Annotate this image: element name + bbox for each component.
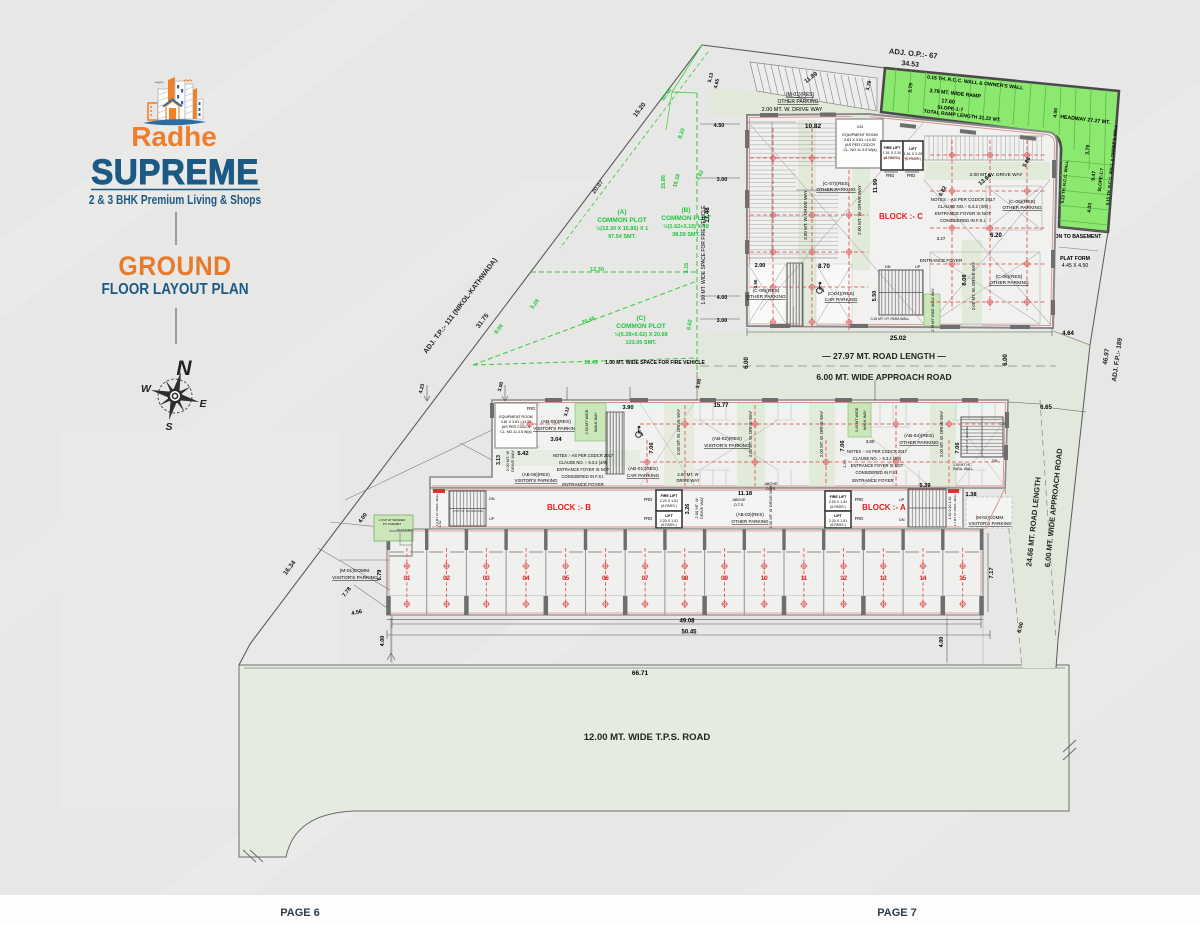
svg-text:(AS PER CGDCR: (AS PER CGDCR bbox=[502, 425, 531, 429]
svg-text:VISITOR'S PARKING: VISITOR'S PARKING bbox=[332, 575, 378, 581]
svg-text:1.52 0.10 1.52: 1.52 0.10 1.52 bbox=[948, 497, 952, 520]
svg-text:2.00 MT. W. DRIVE WAY: 2.00 MT. W. DRIVE WAY bbox=[939, 411, 944, 458]
svg-text:PAGE 7: PAGE 7 bbox=[877, 907, 917, 919]
svg-text:7.06: 7.06 bbox=[955, 442, 961, 454]
svg-text:OTHER PARKING: OTHER PARKING bbox=[732, 519, 769, 524]
svg-text:8.70: 8.70 bbox=[818, 264, 830, 270]
svg-text:(A): (A) bbox=[617, 209, 626, 216]
svg-text:1.51 X 2.20: 1.51 X 2.20 bbox=[883, 151, 901, 155]
svg-text:15.86: 15.86 bbox=[661, 175, 667, 189]
svg-text:LIFT: LIFT bbox=[909, 147, 917, 151]
svg-text:6.65: 6.65 bbox=[1040, 405, 1052, 411]
svg-text:2 & 3 BHK Premium Living & Sho: 2 & 3 BHK Premium Living & Shops bbox=[89, 193, 261, 207]
svg-text:10.82: 10.82 bbox=[805, 123, 822, 130]
svg-text:COMMON PLOT: COMMON PLOT bbox=[597, 217, 646, 224]
svg-text:UP: UP bbox=[915, 265, 921, 269]
svg-text:½(12.30 X 15.86) X 1: ½(12.30 X 15.86) X 1 bbox=[596, 225, 648, 232]
svg-text:WALK WAY: WALK WAY bbox=[594, 412, 598, 432]
svg-text:Radhe: Radhe bbox=[131, 121, 217, 152]
svg-text:(M-01)COMM.: (M-01)COMM. bbox=[340, 568, 371, 574]
svg-text:2.79 MT WIDE WALK WAY: 2.79 MT WIDE WALK WAY bbox=[931, 288, 935, 332]
svg-text:25.02: 25.02 bbox=[890, 335, 907, 342]
svg-text:N: N bbox=[176, 357, 192, 380]
svg-text:BLOCK :- B: BLOCK :- B bbox=[547, 503, 591, 512]
svg-text:SUPREME: SUPREME bbox=[91, 153, 259, 192]
svg-text:2.00 MT. W. DRIVE WAY: 2.00 MT. W. DRIVE WAY bbox=[857, 185, 862, 235]
svg-text:(B): (B) bbox=[681, 207, 690, 214]
svg-text:UP: UP bbox=[899, 498, 905, 502]
svg-text:(C-06)(RES): (C-06)(RES) bbox=[1009, 199, 1036, 205]
svg-text:4.00: 4.00 bbox=[1052, 107, 1059, 118]
svg-text:12.00 MT. WIDE T.P.S. ROAD: 12.00 MT. WIDE T.P.S. ROAD bbox=[584, 732, 711, 743]
svg-text:3.15: 3.15 bbox=[684, 263, 690, 274]
svg-text:OTHER PARKING: OTHER PARKING bbox=[899, 440, 939, 446]
svg-text:38.59 SMT.: 38.59 SMT. bbox=[672, 232, 700, 238]
svg-text:2.00 MT. W: 2.00 MT. W bbox=[677, 472, 698, 477]
svg-text:ABOVE: ABOVE bbox=[732, 498, 746, 502]
svg-text:ENTRANCE FOYER IS NOT: ENTRANCE FOYER IS NOT bbox=[557, 467, 610, 472]
svg-text:(6 PASS.): (6 PASS.) bbox=[830, 523, 846, 527]
svg-text:2.00 MT. W. DRIVE WAY: 2.00 MT. W. DRIVE WAY bbox=[762, 107, 823, 113]
svg-text:10: 10 bbox=[761, 575, 768, 582]
svg-text:17.48: 17.48 bbox=[704, 207, 711, 223]
svg-text:3.49 MT WIDE: 3.49 MT WIDE bbox=[855, 407, 859, 432]
svg-text:DN TO BASEMENT: DN TO BASEMENT bbox=[1055, 234, 1102, 240]
svg-text:09: 09 bbox=[721, 575, 728, 582]
svg-text:15.77: 15.77 bbox=[713, 403, 729, 409]
svg-text:0.15 MT. HT. PARA WALL: 0.15 MT. HT. PARA WALL bbox=[871, 317, 910, 321]
svg-text:(AB-02)(RES): (AB-02)(RES) bbox=[712, 436, 742, 442]
svg-text:4.03: 4.03 bbox=[1087, 203, 1094, 214]
svg-text:DRIVE WAY: DRIVE WAY bbox=[676, 478, 699, 483]
svg-text:— 27.97 MT. ROAD LENGTH —: — 27.97 MT. ROAD LENGTH — bbox=[822, 351, 946, 361]
svg-text:(C-04)(RES): (C-04)(RES) bbox=[828, 291, 855, 297]
svg-text:VISITOR'S PARKING: VISITOR'S PARKING bbox=[515, 478, 558, 483]
svg-text:CL. NO.11.3.5 W(a): CL. NO.11.3.5 W(a) bbox=[843, 148, 877, 152]
svg-text:VISITOR'S PARKING: VISITOR'S PARKING bbox=[704, 443, 750, 449]
svg-text:123.05 SMT.: 123.05 SMT. bbox=[626, 340, 657, 346]
svg-text:½(5.28+6.62) X 20.68: ½(5.28+6.62) X 20.68 bbox=[614, 331, 667, 338]
svg-text:PAGE 6: PAGE 6 bbox=[280, 907, 320, 919]
svg-text:O.T.S.: O.T.S. bbox=[734, 503, 745, 507]
svg-text:7.06: 7.06 bbox=[840, 440, 846, 452]
svg-text:5.42: 5.42 bbox=[517, 451, 528, 457]
svg-text:OTHER PARKING: OTHER PARKING bbox=[746, 294, 786, 300]
svg-text:WALK WAY: WALK WAY bbox=[863, 410, 867, 430]
svg-text:04: 04 bbox=[523, 575, 530, 582]
svg-text:VISITOR'S PARKING: VISITOR'S PARKING bbox=[533, 426, 579, 432]
svg-text:12: 12 bbox=[840, 575, 847, 582]
svg-text:S: S bbox=[165, 421, 172, 433]
svg-text:19.45: 19.45 bbox=[584, 360, 598, 366]
svg-text:1.1 MT HT PARA. WALL: 1.1 MT HT PARA. WALL bbox=[953, 493, 957, 526]
svg-text:ENTRANCE FOYER: ENTRANCE FOYER bbox=[920, 258, 963, 263]
svg-text:9.47: 9.47 bbox=[1091, 171, 1098, 182]
svg-text:2.00 MT. W. DRIVE WAY: 2.00 MT. W. DRIVE WAY bbox=[748, 411, 753, 458]
svg-text:3.81 X 3.81 =14.52: 3.81 X 3.81 =14.52 bbox=[844, 138, 876, 142]
svg-text:GROUND: GROUND bbox=[118, 252, 231, 281]
svg-text:DN: DN bbox=[489, 497, 495, 501]
svg-text:2.53 MT WIDE: 2.53 MT WIDE bbox=[585, 409, 589, 434]
svg-text:E: E bbox=[199, 398, 207, 410]
svg-text:DRIVE WAY: DRIVE WAY bbox=[699, 497, 704, 519]
svg-text:14: 14 bbox=[920, 575, 927, 582]
svg-text:FIRE LIFT: FIRE LIFT bbox=[884, 146, 902, 150]
svg-text:FIRE LIFT: FIRE LIFT bbox=[661, 494, 679, 498]
svg-text:(AB-01)(RES): (AB-01)(RES) bbox=[628, 466, 658, 472]
svg-text:2.20 X 1.51: 2.20 X 1.51 bbox=[660, 499, 678, 503]
svg-text:3.26: 3.26 bbox=[685, 504, 691, 515]
svg-text:ENTRANCE FOYER: ENTRANCE FOYER bbox=[562, 482, 604, 487]
svg-text:1.51 X 2.20: 1.51 X 2.20 bbox=[904, 152, 922, 156]
svg-text:7.06: 7.06 bbox=[649, 442, 655, 454]
svg-text:FRD: FRD bbox=[527, 406, 536, 411]
svg-text:DRIVE WAY: DRIVE WAY bbox=[510, 450, 515, 472]
svg-text:3.27: 3.27 bbox=[937, 236, 946, 241]
svg-text:DN: DN bbox=[899, 518, 905, 522]
svg-text:COMMON PLOT: COMMON PLOT bbox=[616, 323, 665, 330]
svg-text:02: 02 bbox=[443, 575, 450, 582]
svg-text:BLOCK :- A: BLOCK :- A bbox=[862, 503, 906, 512]
svg-text:W: W bbox=[141, 383, 152, 395]
svg-text:07: 07 bbox=[642, 575, 649, 582]
svg-text:(AB-06)(RES): (AB-06)(RES) bbox=[522, 472, 550, 477]
svg-text:CL. NO.11.3.5 W(a): CL. NO.11.3.5 W(a) bbox=[500, 430, 532, 434]
svg-text:DN: DN bbox=[885, 265, 891, 269]
svg-text:1.30: 1.30 bbox=[842, 459, 847, 468]
svg-text:(C-07)(RES): (C-07)(RES) bbox=[823, 181, 850, 187]
svg-text:2.00 MT. W. DRIVE WAY: 2.00 MT. W. DRIVE WAY bbox=[969, 172, 1023, 178]
svg-text:13: 13 bbox=[880, 575, 887, 582]
svg-text:05: 05 bbox=[562, 575, 569, 582]
svg-text:8.08: 8.08 bbox=[962, 274, 968, 286]
svg-text:6.00 MT. WIDE APPROACH ROAD: 6.00 MT. WIDE APPROACH ROAD bbox=[816, 372, 951, 382]
svg-text:6.20: 6.20 bbox=[990, 233, 1002, 239]
svg-text:NOTES :- AS PER CGDCR 2017: NOTES :- AS PER CGDCR 2017 bbox=[931, 197, 996, 202]
svg-text:ENTRANCE FOYER IS NOT: ENTRANCE FOYER IS NOT bbox=[935, 211, 992, 216]
svg-text:(6 PASS.): (6 PASS.) bbox=[830, 505, 846, 509]
svg-text:EQUIPMENT ROOM: EQUIPMENT ROOM bbox=[499, 415, 532, 419]
svg-text:FRD: FRD bbox=[855, 516, 864, 521]
svg-text:15: 15 bbox=[959, 575, 966, 582]
svg-text:BLOCK :- C: BLOCK :- C bbox=[879, 212, 923, 221]
svg-text:3.81: 3.81 bbox=[857, 125, 864, 129]
svg-text:NOTES :- AS PER CGDCR 2017: NOTES :- AS PER CGDCR 2017 bbox=[847, 449, 908, 454]
svg-text:UP: UP bbox=[489, 517, 495, 521]
svg-text:CAR PARKING: CAR PARKING bbox=[825, 297, 858, 303]
svg-text:ENTRANCE FOYER: ENTRANCE FOYER bbox=[852, 478, 894, 483]
svg-text:FRD: FRD bbox=[855, 497, 864, 502]
svg-text:2.00 MT. W. DRIVE WAY: 2.00 MT. W. DRIVE WAY bbox=[676, 409, 681, 456]
svg-text:01: 01 bbox=[403, 575, 410, 582]
svg-text:2.00 MT. W. DRIVE WAY: 2.00 MT. W. DRIVE WAY bbox=[819, 411, 824, 458]
svg-text:(6 PASS.): (6 PASS.) bbox=[661, 504, 677, 508]
svg-text:1.52: 1.52 bbox=[438, 521, 442, 528]
svg-text:11.99: 11.99 bbox=[873, 178, 879, 193]
svg-text:3.79: 3.79 bbox=[907, 82, 914, 93]
svg-text:7.17: 7.17 bbox=[989, 567, 995, 578]
svg-text:03: 03 bbox=[483, 575, 490, 582]
svg-text:6.79: 6.79 bbox=[377, 570, 383, 581]
svg-text:12.30: 12.30 bbox=[590, 267, 604, 273]
svg-text:3.80: 3.80 bbox=[866, 439, 875, 444]
svg-text:FRD: FRD bbox=[907, 173, 916, 178]
svg-text:0.50: 0.50 bbox=[753, 279, 758, 288]
svg-text:5.50: 5.50 bbox=[872, 291, 878, 302]
svg-text:2.00: 2.00 bbox=[755, 263, 766, 269]
svg-text:CONSIDERED IN F.S.I.: CONSIDERED IN F.S.I. bbox=[856, 470, 899, 475]
svg-text:FRD: FRD bbox=[644, 516, 653, 521]
svg-text:66.71: 66.71 bbox=[632, 670, 649, 677]
svg-text:97.54 SMT.: 97.54 SMT. bbox=[608, 234, 636, 240]
svg-text:FRD: FRD bbox=[644, 497, 653, 502]
svg-text:CONSIDERED IN F.S.I.: CONSIDERED IN F.S.I. bbox=[940, 218, 986, 223]
svg-text:3.90: 3.90 bbox=[622, 405, 633, 411]
svg-text:1.00 MT. WIDE SPACE FOR FIRE V: 1.00 MT. WIDE SPACE FOR FIRE VEHICLE bbox=[605, 360, 705, 366]
svg-text:11.18: 11.18 bbox=[738, 491, 753, 497]
svg-text:6.00: 6.00 bbox=[1003, 354, 1009, 366]
svg-text:CLAUSE NO. :- 6.3.2 (4/9): CLAUSE NO. :- 6.3.2 (4/9) bbox=[559, 460, 608, 465]
svg-text:4.00: 4.00 bbox=[380, 636, 386, 647]
svg-text:PARA. WALL: PARA. WALL bbox=[953, 467, 973, 471]
svg-text:2.20 X 1.51: 2.20 X 1.51 bbox=[829, 500, 847, 504]
svg-text:(C-05)(RES): (C-05)(RES) bbox=[996, 274, 1023, 280]
svg-text:5.39: 5.39 bbox=[919, 483, 931, 489]
svg-text:P.V. PARAPET: P.V. PARAPET bbox=[383, 522, 402, 526]
svg-text:11: 11 bbox=[801, 575, 808, 582]
svg-text:4.64: 4.64 bbox=[1062, 331, 1074, 337]
svg-text:06: 06 bbox=[602, 575, 609, 582]
svg-text:FRD: FRD bbox=[886, 173, 895, 178]
svg-text:0 MT HT. NO RAILING: 0 MT HT. NO RAILING bbox=[453, 509, 484, 513]
svg-text:(C): (C) bbox=[636, 315, 645, 322]
svg-text:50.45: 50.45 bbox=[681, 630, 697, 636]
svg-text:2.00 MT. W. DRIVE WAY: 2.00 MT. W. DRIVE WAY bbox=[971, 262, 976, 311]
svg-text:(M-01)(RES): (M-01)(RES) bbox=[786, 92, 815, 98]
svg-text:CONSIDERED IN F.S.I.: CONSIDERED IN F.S.I. bbox=[562, 474, 605, 479]
svg-text:VISITOR'S PARKING: VISITOR'S PARKING bbox=[969, 521, 1012, 526]
svg-text:LIFT: LIFT bbox=[834, 514, 842, 518]
svg-text:PLAT FORM: PLAT FORM bbox=[1060, 256, 1090, 262]
svg-text:3.04: 3.04 bbox=[550, 437, 562, 443]
svg-text:(AB-04)(RES): (AB-04)(RES) bbox=[904, 433, 934, 439]
svg-text:LIFT: LIFT bbox=[665, 514, 673, 518]
svg-text:2.00 MT. W DRIVE WAY: 2.00 MT. W DRIVE WAY bbox=[768, 485, 773, 529]
svg-text:(6 PASS.): (6 PASS.) bbox=[661, 523, 677, 527]
svg-text:FIRE LIFT: FIRE LIFT bbox=[830, 495, 848, 499]
svg-text:CAR PARKING: CAR PARKING bbox=[627, 473, 660, 479]
svg-text:EQUIPMENT ROOM: EQUIPMENT ROOM bbox=[842, 133, 877, 137]
svg-text:NOTES :- AS PER CGDCR 2017: NOTES :- AS PER CGDCR 2017 bbox=[553, 453, 614, 458]
svg-text:FLOOR LAYOUT PLAN: FLOOR LAYOUT PLAN bbox=[101, 281, 248, 298]
svg-text:(AB-03)(RES): (AB-03)(RES) bbox=[736, 512, 764, 517]
svg-text:49.08: 49.08 bbox=[679, 619, 695, 625]
svg-text:2.00 MT. W. DRIVE WAY: 2.00 MT. W. DRIVE WAY bbox=[803, 190, 808, 240]
svg-text:OTHER PARKING: OTHER PARKING bbox=[1002, 205, 1042, 211]
svg-text:3.13: 3.13 bbox=[496, 455, 502, 465]
svg-text:6.00: 6.00 bbox=[744, 357, 750, 369]
svg-text:3.79: 3.79 bbox=[1085, 145, 1092, 156]
svg-text:OTHER PARKING: OTHER PARKING bbox=[989, 280, 1029, 286]
svg-text:CLAUSE NO.:- 6.3.2 (4/9): CLAUSE NO.:- 6.3.2 (4/9) bbox=[938, 204, 989, 209]
svg-text:4.45 X 4.50: 4.45 X 4.50 bbox=[1062, 263, 1089, 269]
svg-text:OTHER PARKING: OTHER PARKING bbox=[777, 99, 818, 105]
svg-text:3.81 X 3.81 =14.52: 3.81 X 3.81 =14.52 bbox=[501, 420, 531, 424]
svg-text:OTHER PARKING: OTHER PARKING bbox=[816, 187, 856, 193]
svg-text:1.0 MT HT. RAILING: 1.0 MT HT. RAILING bbox=[965, 426, 969, 454]
svg-text:08: 08 bbox=[681, 575, 688, 582]
svg-text:4.00: 4.00 bbox=[939, 637, 945, 648]
svg-text:(AS PER CGDCR: (AS PER CGDCR bbox=[845, 143, 875, 147]
